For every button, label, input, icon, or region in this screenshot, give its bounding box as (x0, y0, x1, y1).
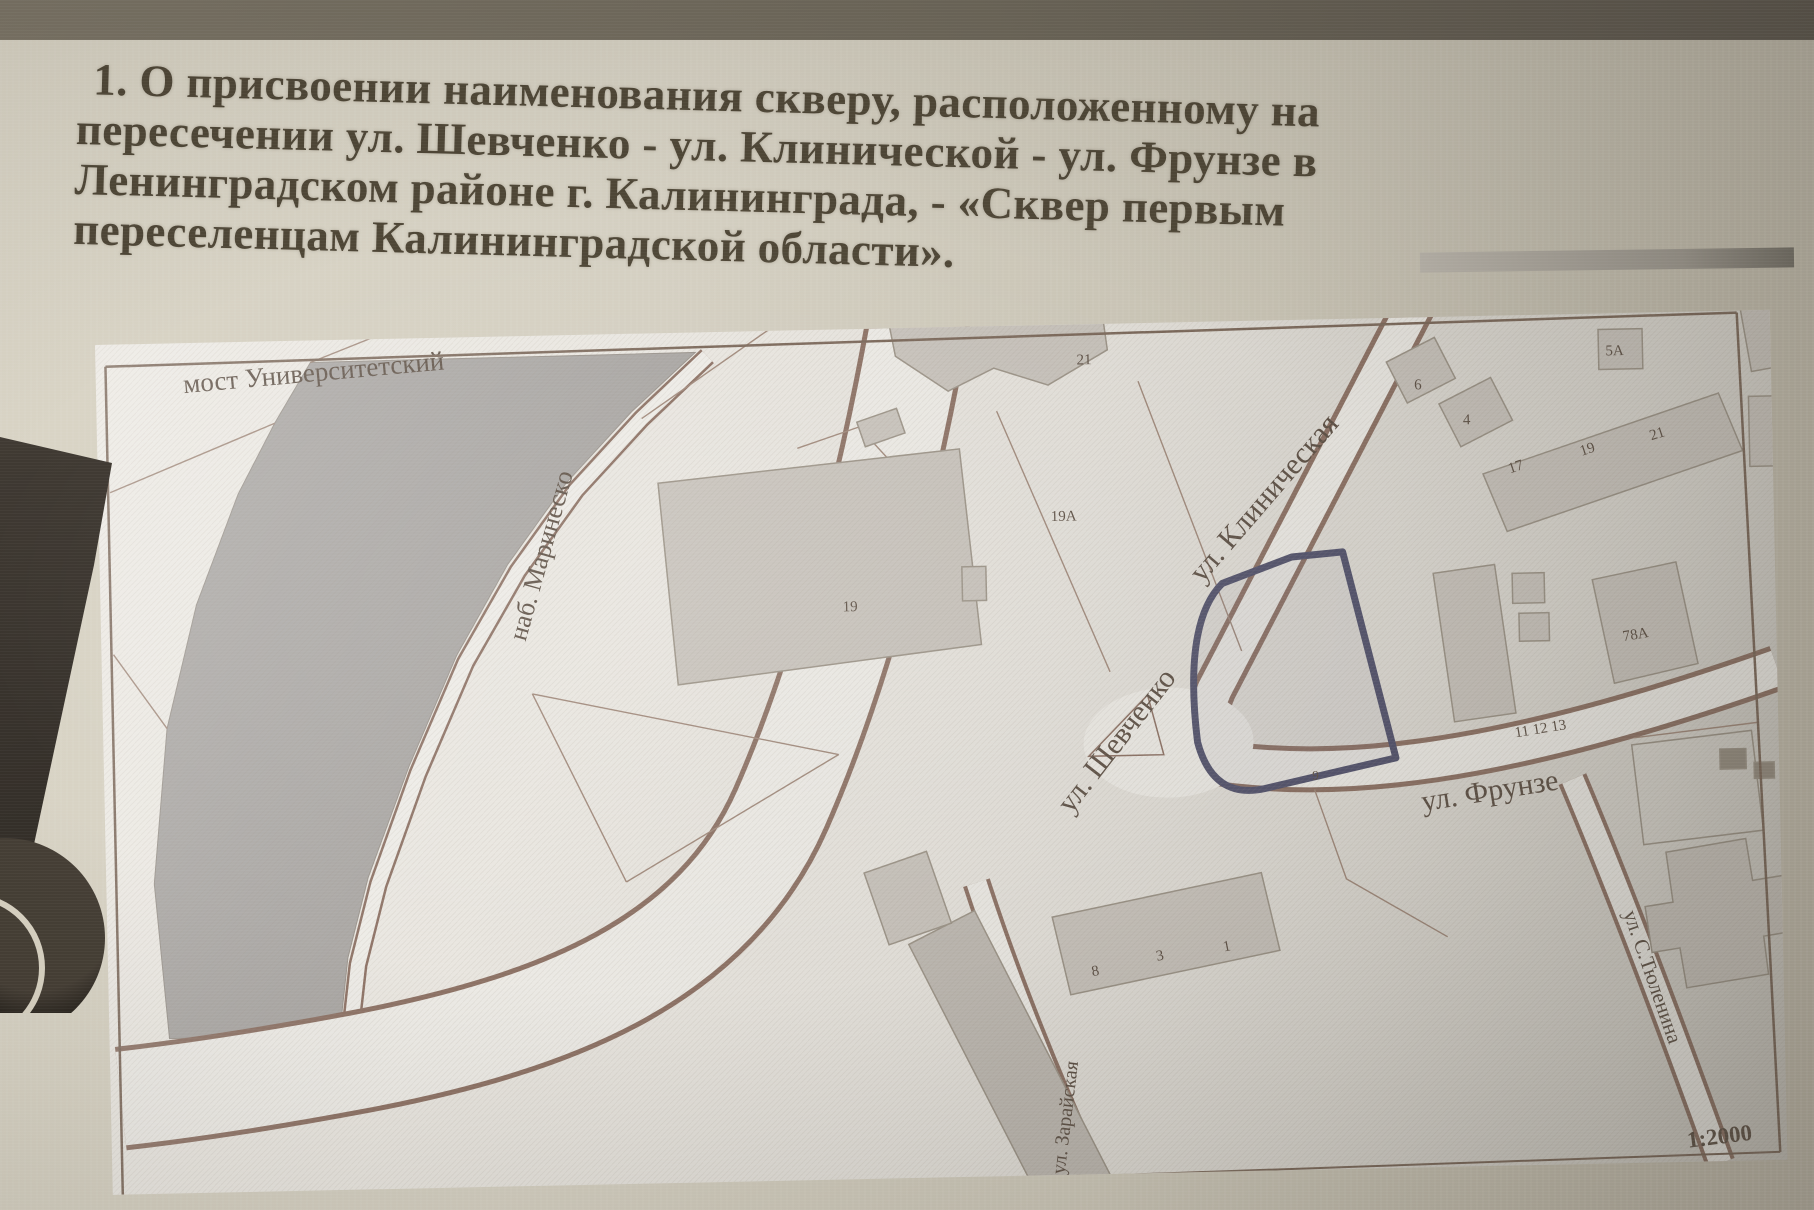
highlighted-square-parcel (1191, 551, 1397, 792)
building-78a (1592, 562, 1698, 684)
square-outline (1191, 551, 1397, 792)
building-19-annex (962, 566, 987, 600)
building-right-bottom-parcel (1631, 730, 1763, 845)
number-6: 6 (1414, 377, 1422, 393)
parcel-line (997, 409, 1110, 674)
building-mid-cluster (1433, 565, 1516, 722)
number-19a: 19А (1051, 508, 1077, 525)
number-9-square: 9 (1312, 767, 1319, 782)
number-4: 4 (1463, 412, 1471, 428)
building-dark-2 (1754, 762, 1774, 778)
building-row-8-3-1 (1051, 872, 1280, 995)
number-19-central: 19 (842, 599, 857, 615)
parcel-line (113, 654, 167, 730)
city-map: мост Университетский наб. Маринеско ул. … (95, 310, 1787, 1195)
building-19-central (657, 449, 982, 686)
map-panel: мост Университетский наб. Маринеско ул. … (95, 310, 1787, 1195)
building-4 (1439, 377, 1513, 446)
parcel-line (532, 692, 626, 884)
building-mid-small-1 (1512, 573, 1545, 604)
building-dark-1 (1720, 749, 1746, 770)
wall-strip (0, 0, 1814, 40)
slide-title: 1. О присвоении наименования скверу, рас… (73, 54, 1518, 292)
number-5a: 5А (1605, 343, 1624, 359)
photo-artifact-dark-object (0, 838, 120, 1013)
building-mid-small-2 (1519, 613, 1550, 642)
number-21-top: 21 (1076, 352, 1091, 368)
